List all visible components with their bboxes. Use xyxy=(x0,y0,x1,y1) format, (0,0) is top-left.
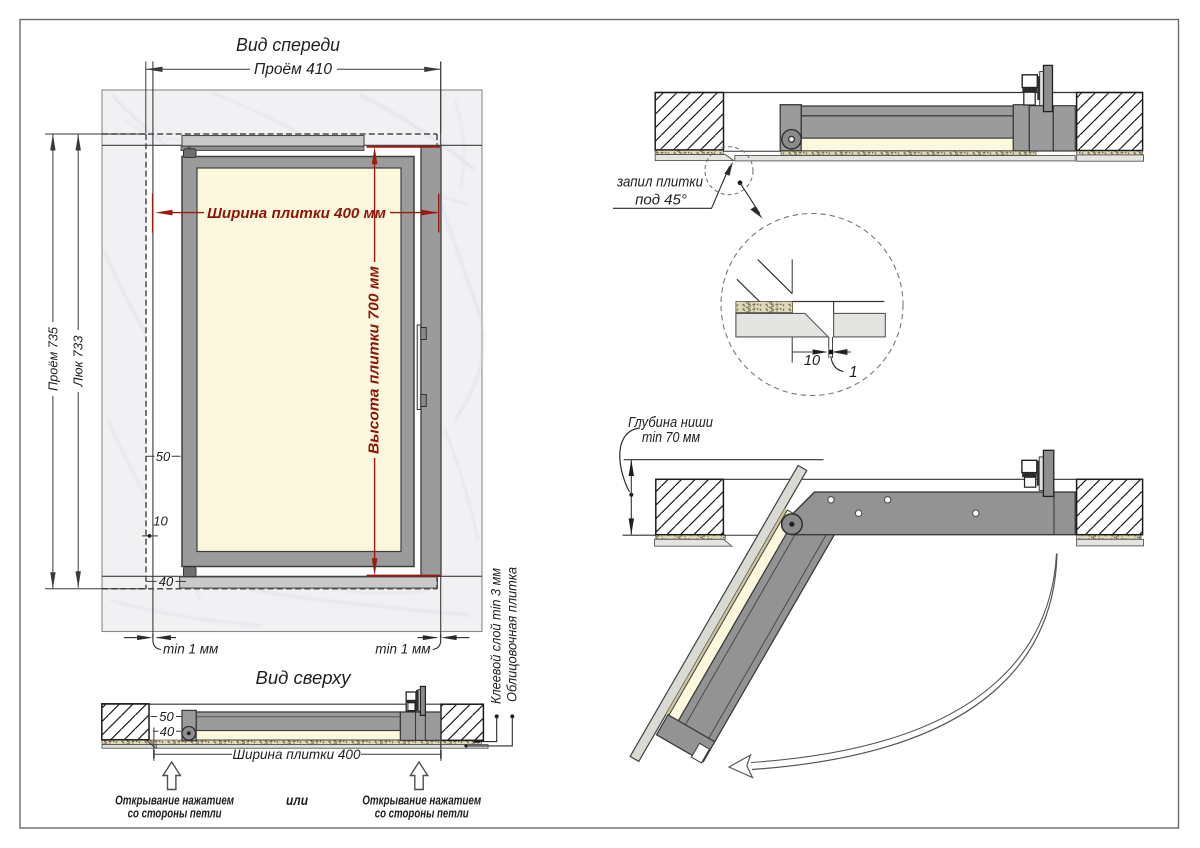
svg-text:Ширина плитки 400: Ширина плитки 400 xyxy=(233,746,361,762)
svg-text:Проём 735: Проём 735 xyxy=(45,326,60,391)
svg-text:min 1 мм: min 1 мм xyxy=(375,642,430,657)
svg-text:50: 50 xyxy=(156,449,171,464)
svg-text:10: 10 xyxy=(153,514,168,529)
svg-text:со стороны петли: со стороны петли xyxy=(128,806,222,821)
svg-text:запил плитки: запил плитки xyxy=(616,174,703,191)
svg-text:Вид спереди: Вид спереди xyxy=(236,34,340,55)
svg-text:со стороны петли: со стороны петли xyxy=(375,806,469,821)
svg-text:40: 40 xyxy=(159,574,174,589)
svg-text:Проём 410: Проём 410 xyxy=(254,61,332,78)
svg-text:Вид сверху: Вид сверху xyxy=(256,667,353,688)
svg-text:Клеевой слой min 3 мм: Клеевой слой min 3 мм xyxy=(488,568,504,704)
svg-text:50: 50 xyxy=(159,709,174,724)
svg-text:min 70 мм: min 70 мм xyxy=(642,429,700,446)
svg-text:Облицовочная плитка: Облицовочная плитка xyxy=(504,567,520,702)
svg-text:10: 10 xyxy=(804,353,820,369)
svg-text:min 1 мм: min 1 мм xyxy=(163,642,218,657)
svg-text:40: 40 xyxy=(160,724,175,739)
svg-text:или: или xyxy=(286,792,308,808)
svg-text:1: 1 xyxy=(849,364,858,381)
svg-text:Ширина плитки 400 мм: Ширина плитки 400 мм xyxy=(207,205,386,222)
svg-text:под 45°: под 45° xyxy=(635,192,687,209)
svg-text:Высота плитки 700 мм: Высота плитки 700 мм xyxy=(366,266,383,454)
svg-text:Люк 733: Люк 733 xyxy=(71,335,86,388)
